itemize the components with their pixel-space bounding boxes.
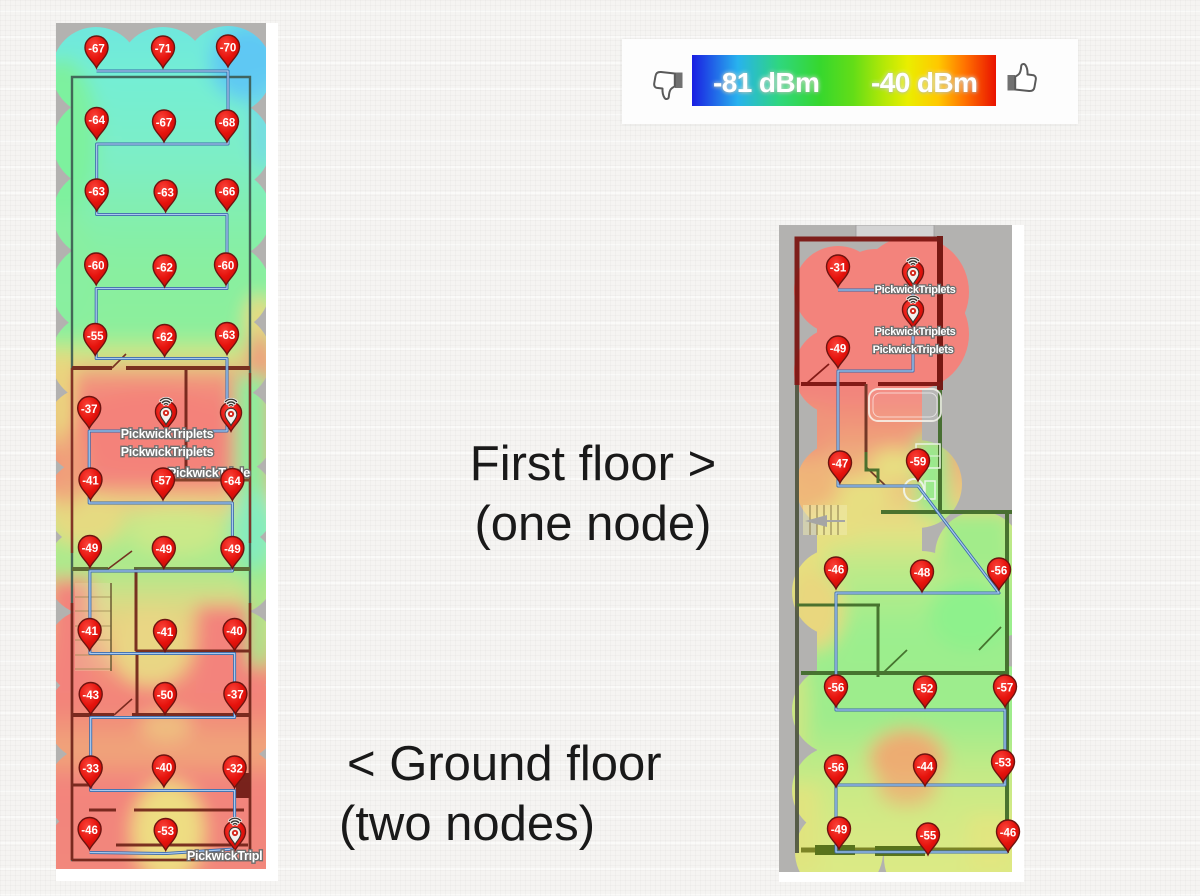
svg-text:-43: -43: [82, 690, 99, 702]
svg-text:PickwickTriplets: PickwickTriplets: [873, 344, 954, 356]
svg-text:-67: -67: [156, 118, 173, 130]
svg-text:PickwickTripl: PickwickTripl: [187, 849, 262, 863]
svg-text:-52: -52: [917, 684, 934, 696]
svg-text:-67: -67: [88, 44, 105, 56]
svg-text:-55: -55: [920, 831, 937, 843]
svg-text:-41: -41: [81, 626, 98, 638]
svg-text:-49: -49: [224, 544, 241, 556]
svg-text:-41: -41: [82, 476, 99, 488]
svg-text:-41: -41: [157, 627, 174, 639]
svg-text:-64: -64: [224, 476, 241, 488]
svg-text:-56: -56: [828, 763, 845, 775]
svg-text:-46: -46: [828, 565, 845, 577]
svg-text:PickwickTriplets: PickwickTriplets: [875, 284, 956, 296]
svg-text:-33: -33: [82, 764, 99, 776]
svg-text:-57: -57: [997, 683, 1014, 695]
svg-text:-53: -53: [157, 826, 174, 838]
svg-text:-37: -37: [227, 690, 244, 702]
svg-text:-47: -47: [832, 459, 849, 471]
svg-text:-49: -49: [831, 825, 848, 837]
svg-text:-46: -46: [1000, 828, 1017, 840]
svg-text:-56: -56: [828, 683, 845, 695]
svg-text:-32: -32: [226, 764, 243, 776]
svg-text:-66: -66: [219, 187, 236, 199]
svg-text:-64: -64: [88, 115, 105, 127]
svg-text:-31: -31: [830, 263, 847, 275]
svg-text:-55: -55: [87, 331, 104, 343]
svg-text:-70: -70: [220, 43, 237, 55]
svg-text:-60: -60: [88, 261, 105, 273]
svg-text:-56: -56: [991, 566, 1008, 578]
svg-text:-44: -44: [917, 762, 934, 774]
svg-text:-49: -49: [830, 344, 847, 356]
svg-text:-40: -40: [226, 626, 243, 638]
svg-text:-57: -57: [155, 476, 172, 488]
svg-text:PickwickTriplets: PickwickTriplets: [121, 427, 214, 441]
svg-text:PickwickTriplets: PickwickTriplets: [875, 326, 956, 338]
svg-text:-63: -63: [157, 188, 174, 200]
svg-text:-49: -49: [82, 543, 99, 555]
svg-text:-37: -37: [81, 404, 98, 416]
svg-text:-50: -50: [157, 690, 174, 702]
svg-text:-62: -62: [156, 263, 173, 275]
svg-text:-48: -48: [914, 568, 931, 580]
svg-text:-40: -40: [156, 763, 173, 775]
svg-text:-53: -53: [995, 758, 1012, 770]
svg-text:-62: -62: [156, 332, 173, 344]
svg-text:-63: -63: [219, 330, 236, 342]
svg-text:-49: -49: [155, 544, 172, 556]
svg-text:-46: -46: [81, 825, 98, 837]
svg-text:-60: -60: [218, 261, 235, 273]
svg-text:-68: -68: [219, 118, 236, 130]
svg-text:PickwickTriplets: PickwickTriplets: [121, 445, 214, 459]
svg-text:-71: -71: [155, 44, 172, 56]
svg-text:-63: -63: [88, 187, 105, 199]
svg-text:-59: -59: [910, 457, 927, 469]
